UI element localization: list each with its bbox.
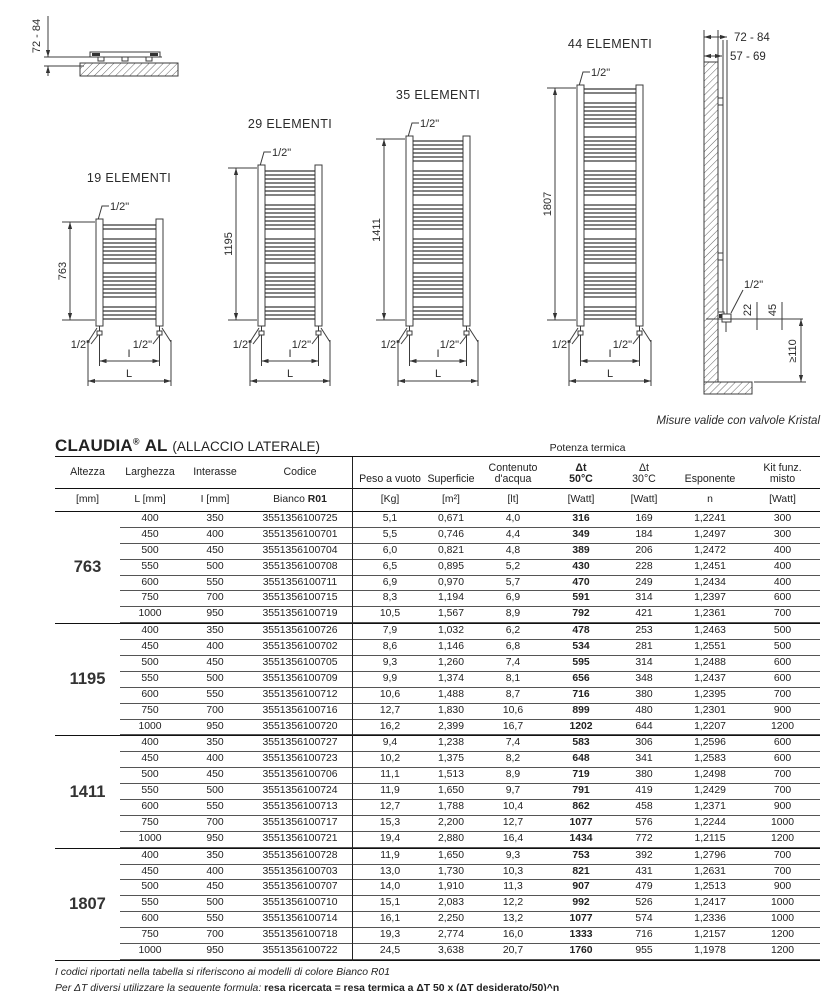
unit-kit: [Watt] [745,489,820,511]
cell-dt50: 534 [549,642,613,653]
cell-peso: 11,9 [355,851,425,862]
table-row: 1000 950 3551356100721 19,4 2,880 16,4 1… [120,832,820,848]
cell-interasse: 950 [180,722,250,733]
cell-peso: 12,7 [355,802,425,813]
cell-peso: 11,1 [355,770,425,781]
cell-codice: 3551356100722 [250,946,350,957]
cell-larghezza: 500 [120,546,180,557]
table-row: 750 700 3551356100716 12,7 1,830 10,6 89… [120,704,820,720]
cell-esponente: 1,2301 [675,706,745,717]
cell-superficie: 2,880 [425,834,477,845]
unit-superficie: [m²] [425,489,477,511]
cell-interasse: 700 [180,593,250,604]
cell-contenuto: 5,7 [477,578,549,589]
cell-peso: 6,9 [355,578,425,589]
cell-contenuto: 8,9 [477,770,549,781]
cell-contenuto: 4,0 [477,514,549,525]
cell-peso: 8,3 [355,593,425,604]
table-row: 400 350 3551356100727 9,4 1,238 7,4 583 … [120,736,820,752]
unit-dt30: [Watt] [613,489,675,511]
radiator-drawing-35: 35 ELEMENTI 1/2" 1411 1/2" 1/2" I L [371,88,480,386]
cell-kit: 400 [745,546,820,557]
table-row: 750 700 3551356100717 15,3 2,200 12,7 10… [120,816,820,832]
cell-larghezza: 750 [120,818,180,829]
cell-dt30: 380 [613,770,675,781]
cell-dt30: 206 [613,546,675,557]
interasse-dim-label: I [608,348,611,360]
cell-dt30: 644 [613,722,675,733]
radiator-drawing-29: 29 ELEMENTI 1/2" 1195 1/2" 1/2" I L [223,117,332,386]
cell-esponente: 1,2463 [675,626,745,637]
cell-interasse: 550 [180,802,250,813]
cell-codice: 3551356100725 [250,514,350,525]
cell-kit: 700 [745,609,820,620]
bottom-connection-right-label: 1/2" [613,339,632,351]
cell-interasse: 950 [180,834,250,845]
altezza-value: 1411 [55,736,120,847]
cell-contenuto: 20,7 [477,946,549,957]
radiator-drawing-44: 44 ELEMENTI 1/2" 1807 1/2" 1/2" I L [542,37,652,386]
cell-codice: 3551356100706 [250,770,350,781]
cell-kit: 400 [745,562,820,573]
cell-larghezza: 500 [120,882,180,893]
cell-dt50: 862 [549,802,613,813]
cell-interasse: 350 [180,514,250,525]
cell-esponente: 1,2631 [675,867,745,878]
cell-esponente: 1,2336 [675,914,745,925]
cell-contenuto: 6,8 [477,642,549,653]
cell-superficie: 1,375 [425,754,477,765]
side-dim-valve-label: 45 [767,304,779,316]
drawings-caption: Misure valide con valvole Kristal [656,415,820,427]
table-row: 450 400 3551356100723 10,2 1,375 8,2 648… [120,752,820,768]
cell-superficie: 0,671 [425,514,477,525]
cell-dt50: 430 [549,562,613,573]
larghezza-dim-label: L [435,368,441,380]
cell-codice: 3551356100715 [250,593,350,604]
cell-contenuto: 16,0 [477,930,549,941]
cell-dt30: 380 [613,690,675,701]
cell-codice: 3551356100712 [250,690,350,701]
cell-esponente: 1,2417 [675,898,745,909]
cell-esponente: 1,2551 [675,642,745,653]
cell-interasse: 450 [180,658,250,669]
cell-larghezza: 750 [120,593,180,604]
cell-codice: 3551356100701 [250,530,350,541]
cell-peso: 7,9 [355,626,425,637]
cell-superficie: 1,260 [425,658,477,669]
cell-esponente: 1,2596 [675,738,745,749]
table-units-row: [mm] L [mm] I [mm] Bianco R01 [Kg] [m²] … [55,489,820,512]
cell-superficie: 0,970 [425,578,477,589]
cell-peso: 24,5 [355,946,425,957]
cell-codice: 3551356100726 [250,626,350,637]
cell-peso: 16,2 [355,722,425,733]
cell-larghezza: 450 [120,867,180,878]
cell-peso: 9,4 [355,738,425,749]
cell-interasse: 700 [180,930,250,941]
cell-esponente: 1,2157 [675,930,745,941]
radiator-label: 19 ELEMENTI [87,171,171,185]
cell-interasse: 500 [180,898,250,909]
cell-peso: 6,5 [355,562,425,573]
cell-peso: 10,2 [355,754,425,765]
cell-codice: 3551356100708 [250,562,350,573]
side-dim-floor-label: ≥110 [787,339,799,363]
bottom-connection-left-label: 1/2" [381,339,400,351]
cell-dt30: 480 [613,706,675,717]
cell-kit: 300 [745,530,820,541]
bottom-connection-left-label: 1/2" [71,339,90,351]
group-rows: 400 350 3551356100727 9,4 1,238 7,4 583 … [120,736,820,847]
group-rows: 400 350 3551356100726 7,9 1,032 6,2 478 … [120,624,820,735]
cell-peso: 10,5 [355,609,425,620]
cell-dt30: 479 [613,882,675,893]
cell-esponente: 1,2207 [675,722,745,733]
footnote-formula: Per ΔT diversi utilizzare la seguente fo… [55,981,827,991]
cell-dt30: 341 [613,754,675,765]
group-rows: 400 350 3551356100725 5,1 0,671 4,0 316 … [120,512,820,623]
cell-dt30: 526 [613,898,675,909]
side-dim-offset-label: 22 [742,304,754,316]
cell-peso: 6,0 [355,546,425,557]
unit-interasse: I [mm] [180,489,250,511]
cell-esponente: 1,2498 [675,770,745,781]
cell-peso: 9,9 [355,674,425,685]
cell-dt50: 899 [549,706,613,717]
cell-superficie: 1,650 [425,851,477,862]
cell-dt50: 1760 [549,946,613,957]
cell-dt30: 392 [613,851,675,862]
cell-kit: 500 [745,626,820,637]
cell-esponente: 1,2437 [675,674,745,685]
col-header-dt30: Δt 30°C [613,457,675,488]
cell-contenuto: 4,8 [477,546,549,557]
cell-interasse: 950 [180,609,250,620]
cell-dt50: 478 [549,626,613,637]
cell-esponente: 1,2361 [675,609,745,620]
cell-larghezza: 600 [120,578,180,589]
potenza-termica-span-header: Potenza termica [355,442,820,456]
cell-codice: 3551356100721 [250,834,350,845]
cell-larghezza: 600 [120,690,180,701]
cell-interasse: 550 [180,690,250,701]
cell-interasse: 350 [180,738,250,749]
cell-kit: 1000 [745,818,820,829]
bottom-connection-left-label: 1/2" [233,339,252,351]
cell-dt50: 1202 [549,722,613,733]
cell-kit: 1200 [745,834,820,845]
unit-peso: [Kg] [355,489,425,511]
cell-superficie: 2,083 [425,898,477,909]
height-group: 1807 400 350 3551356100728 11,9 1,650 9,… [55,849,820,961]
cell-peso: 19,4 [355,834,425,845]
cell-dt50: 1333 [549,930,613,941]
unit-esponente: n [675,489,745,511]
table-row: 550 500 3551356100709 9,9 1,374 8,1 656 … [120,672,820,688]
height-dim-label: 1411 [371,218,383,242]
title-suffix: (ALLACCIO LATERALE) [172,439,320,454]
cell-superficie: 1,567 [425,609,477,620]
cell-kit: 700 [745,690,820,701]
sheet-title-row: CLAUDIA® AL (ALLACCIO LATERALE) Potenza … [55,432,820,457]
interasse-dim-label: I [436,348,439,360]
cell-larghezza: 600 [120,914,180,925]
cell-contenuto: 7,4 [477,658,549,669]
cell-dt30: 314 [613,593,675,604]
cell-codice: 3551356100713 [250,802,350,813]
table-row: 550 500 3551356100724 11,9 1,650 9,7 791… [120,784,820,800]
cell-esponente: 1,2429 [675,786,745,797]
cell-dt50: 992 [549,898,613,909]
cell-dt50: 591 [549,593,613,604]
cell-superficie: 0,895 [425,562,477,573]
cell-codice: 3551356100703 [250,867,350,878]
cell-larghezza: 400 [120,851,180,862]
cell-superficie: 1,910 [425,882,477,893]
table-row: 500 450 3551356100705 9,3 1,260 7,4 595 … [120,656,820,672]
cell-interasse: 400 [180,754,250,765]
table-row: 1000 950 3551356100722 24,5 3,638 20,7 1… [120,944,820,960]
cell-dt30: 574 [613,914,675,925]
cell-esponente: 1,1978 [675,946,745,957]
col-header-kit: Kit funz. misto [745,457,820,488]
table-vertical-divider [352,457,353,961]
cell-contenuto: 6,9 [477,593,549,604]
unit-dt50: [Watt] [549,489,613,511]
cell-kit: 300 [745,514,820,525]
cell-dt30: 772 [613,834,675,845]
cell-superficie: 1,238 [425,738,477,749]
cell-kit: 700 [745,867,820,878]
col-header-altezza: Altezza [55,457,120,488]
cell-esponente: 1,2497 [675,530,745,541]
cell-contenuto: 13,2 [477,914,549,925]
cell-esponente: 1,2488 [675,658,745,669]
cell-contenuto: 8,2 [477,754,549,765]
cell-codice: 3551356100714 [250,914,350,925]
top-connection-label: 1/2" [591,67,610,79]
cell-superficie: 1,788 [425,802,477,813]
cell-kit: 1200 [745,930,820,941]
table-row: 400 350 3551356100725 5,1 0,671 4,0 316 … [120,512,820,528]
cell-contenuto: 9,3 [477,851,549,862]
cell-superficie: 3,638 [425,946,477,957]
cell-dt50: 470 [549,578,613,589]
table-row: 600 550 3551356100712 10,6 1,488 8,7 716… [120,688,820,704]
cell-kit: 1200 [745,722,820,733]
cell-interasse: 550 [180,578,250,589]
cell-superficie: 1,830 [425,706,477,717]
cell-superficie: 2,399 [425,722,477,733]
cell-esponente: 1,2241 [675,514,745,525]
cell-larghezza: 1000 [120,834,180,845]
cell-dt50: 1434 [549,834,613,845]
cell-peso: 14,0 [355,882,425,893]
unit-codice: Bianco R01 [250,489,350,511]
cell-interasse: 400 [180,867,250,878]
table-row: 500 450 3551356100707 14,0 1,910 11,3 90… [120,880,820,896]
table-row: 400 350 3551356100726 7,9 1,032 6,2 478 … [120,624,820,640]
table-row: 450 400 3551356100701 5,5 0,746 4,4 349 … [120,528,820,544]
col-header-superficie: Superficie [425,457,477,488]
technical-drawings: 72 - 84 19 ELEMENTI 1/2" 763 1/2" 1/2" I… [0,0,827,432]
bottom-connection-right-label: 1/2" [133,339,152,351]
altezza-value: 1807 [55,849,120,960]
cell-interasse: 700 [180,706,250,717]
cell-kit: 900 [745,802,820,813]
cell-kit: 900 [745,882,820,893]
side-dim-wall2-label: 57 - 69 [730,51,766,63]
cell-contenuto: 10,6 [477,706,549,717]
cell-kit: 600 [745,754,820,765]
cell-superficie: 0,746 [425,530,477,541]
cell-superficie: 1,032 [425,626,477,637]
cell-larghezza: 550 [120,898,180,909]
cell-larghezza: 550 [120,562,180,573]
cell-kit: 600 [745,593,820,604]
unit-larghezza: L [mm] [120,489,180,511]
cell-larghezza: 600 [120,802,180,813]
cell-peso: 11,9 [355,786,425,797]
cell-superficie: 0,821 [425,546,477,557]
footnotes: I codici riportati nella tabella si rife… [55,965,827,991]
cell-contenuto: 5,2 [477,562,549,573]
cell-esponente: 1,2583 [675,754,745,765]
cell-esponente: 1,2244 [675,818,745,829]
cell-larghezza: 1000 [120,946,180,957]
interasse-dim-label: I [288,348,291,360]
cell-dt30: 314 [613,658,675,669]
height-dim-label: 763 [57,262,69,280]
radiator-drawing-19: 19 ELEMENTI 1/2" 763 1/2" 1/2" I L [57,171,171,386]
cell-interasse: 350 [180,851,250,862]
cell-peso: 5,1 [355,514,425,525]
cell-interasse: 400 [180,530,250,541]
cell-interasse: 450 [180,546,250,557]
table-row: 600 550 3551356100714 16,1 2,250 13,2 10… [120,912,820,928]
cell-dt50: 349 [549,530,613,541]
spec-table: Altezza Larghezza Interasse Codice Peso … [55,457,820,961]
cell-interasse: 500 [180,562,250,573]
cell-peso: 8,6 [355,642,425,653]
cell-kit: 500 [745,642,820,653]
cell-larghezza: 450 [120,530,180,541]
cell-contenuto: 4,4 [477,530,549,541]
col-header-contenuto: Contenuto d'acqua [477,457,549,488]
cell-dt50: 1077 [549,914,613,925]
cell-interasse: 500 [180,786,250,797]
table-body: 763 400 350 3551356100725 5,1 0,671 4,0 [55,512,820,961]
cell-contenuto: 16,4 [477,834,549,845]
cell-codice: 3551356100728 [250,851,350,862]
col-header-interasse: Interasse [180,457,250,488]
altezza-value: 1195 [55,624,120,735]
cell-dt30: 184 [613,530,675,541]
bottom-connection-right-label: 1/2" [292,339,311,351]
cell-dt50: 595 [549,658,613,669]
cell-codice: 3551356100704 [250,546,350,557]
cell-contenuto: 12,2 [477,898,549,909]
cell-kit: 700 [745,786,820,797]
registered-mark: ® [133,436,140,446]
cell-contenuto: 9,7 [477,786,549,797]
cell-esponente: 1,2434 [675,578,745,589]
cell-dt50: 648 [549,754,613,765]
col-header-codice: Codice [250,457,350,488]
radiator-label: 44 ELEMENTI [568,37,652,51]
cell-kit: 600 [745,674,820,685]
cell-kit: 400 [745,578,820,589]
cell-esponente: 1,2371 [675,802,745,813]
footnote-codici: I codici riportati nella tabella si rife… [55,965,827,981]
cell-esponente: 1,2472 [675,546,745,557]
cell-kit: 600 [745,738,820,749]
cell-esponente: 1,2395 [675,690,745,701]
cell-esponente: 1,2115 [675,834,745,845]
cell-larghezza: 400 [120,738,180,749]
cell-peso: 13,0 [355,867,425,878]
cell-peso: 19,3 [355,930,425,941]
cell-esponente: 1,2451 [675,562,745,573]
cell-esponente: 1,2513 [675,882,745,893]
height-group: 763 400 350 3551356100725 5,1 0,671 4,0 [55,512,820,624]
cell-peso: 16,1 [355,914,425,925]
table-row: 1000 950 3551356100719 10,5 1,567 8,9 79… [120,607,820,623]
side-valve-label: 1/2" [744,279,763,291]
cell-dt30: 955 [613,946,675,957]
col-header-larghezza: Larghezza [120,457,180,488]
cell-codice: 3551356100719 [250,609,350,620]
cell-codice: 3551356100702 [250,642,350,653]
cell-larghezza: 550 [120,786,180,797]
cell-contenuto: 6,2 [477,626,549,637]
cell-superficie: 1,650 [425,786,477,797]
cell-contenuto: 7,4 [477,738,549,749]
cell-codice: 3551356100709 [250,674,350,685]
height-dim-label: 1807 [542,192,554,216]
cell-dt50: 316 [549,514,613,525]
cell-codice: 3551356100724 [250,786,350,797]
col-header-esponente: Esponente [675,457,745,488]
cell-dt30: 281 [613,642,675,653]
cell-interasse: 500 [180,674,250,685]
drawings-svg: 72 - 84 19 ELEMENTI 1/2" 763 1/2" 1/2" I… [0,0,827,432]
cell-superficie: 2,250 [425,914,477,925]
cell-dt30: 419 [613,786,675,797]
cell-esponente: 1,2397 [675,593,745,604]
table-row: 1000 950 3551356100720 16,2 2,399 16,7 1… [120,720,820,736]
unit-contenuto: [lt] [477,489,549,511]
cell-esponente: 1,2796 [675,851,745,862]
interasse-dim-label: I [127,348,130,360]
cell-larghezza: 1000 [120,609,180,620]
top-view-drawing: 72 - 84 [31,16,178,76]
cell-contenuto: 12,7 [477,818,549,829]
height-group: 1195 400 350 3551356100726 7,9 1,032 6,2 [55,624,820,736]
cell-interasse: 350 [180,626,250,637]
table-row: 550 500 3551356100710 15,1 2,083 12,2 99… [120,896,820,912]
larghezza-dim-label: L [126,368,132,380]
cell-kit: 900 [745,706,820,717]
cell-larghezza: 450 [120,642,180,653]
cell-codice: 3551356100723 [250,754,350,765]
cell-codice: 3551356100716 [250,706,350,717]
cell-kit: 700 [745,851,820,862]
cell-codice: 3551356100718 [250,930,350,941]
cell-codice: 3551356100711 [250,578,350,589]
larghezza-dim-label: L [287,368,293,380]
